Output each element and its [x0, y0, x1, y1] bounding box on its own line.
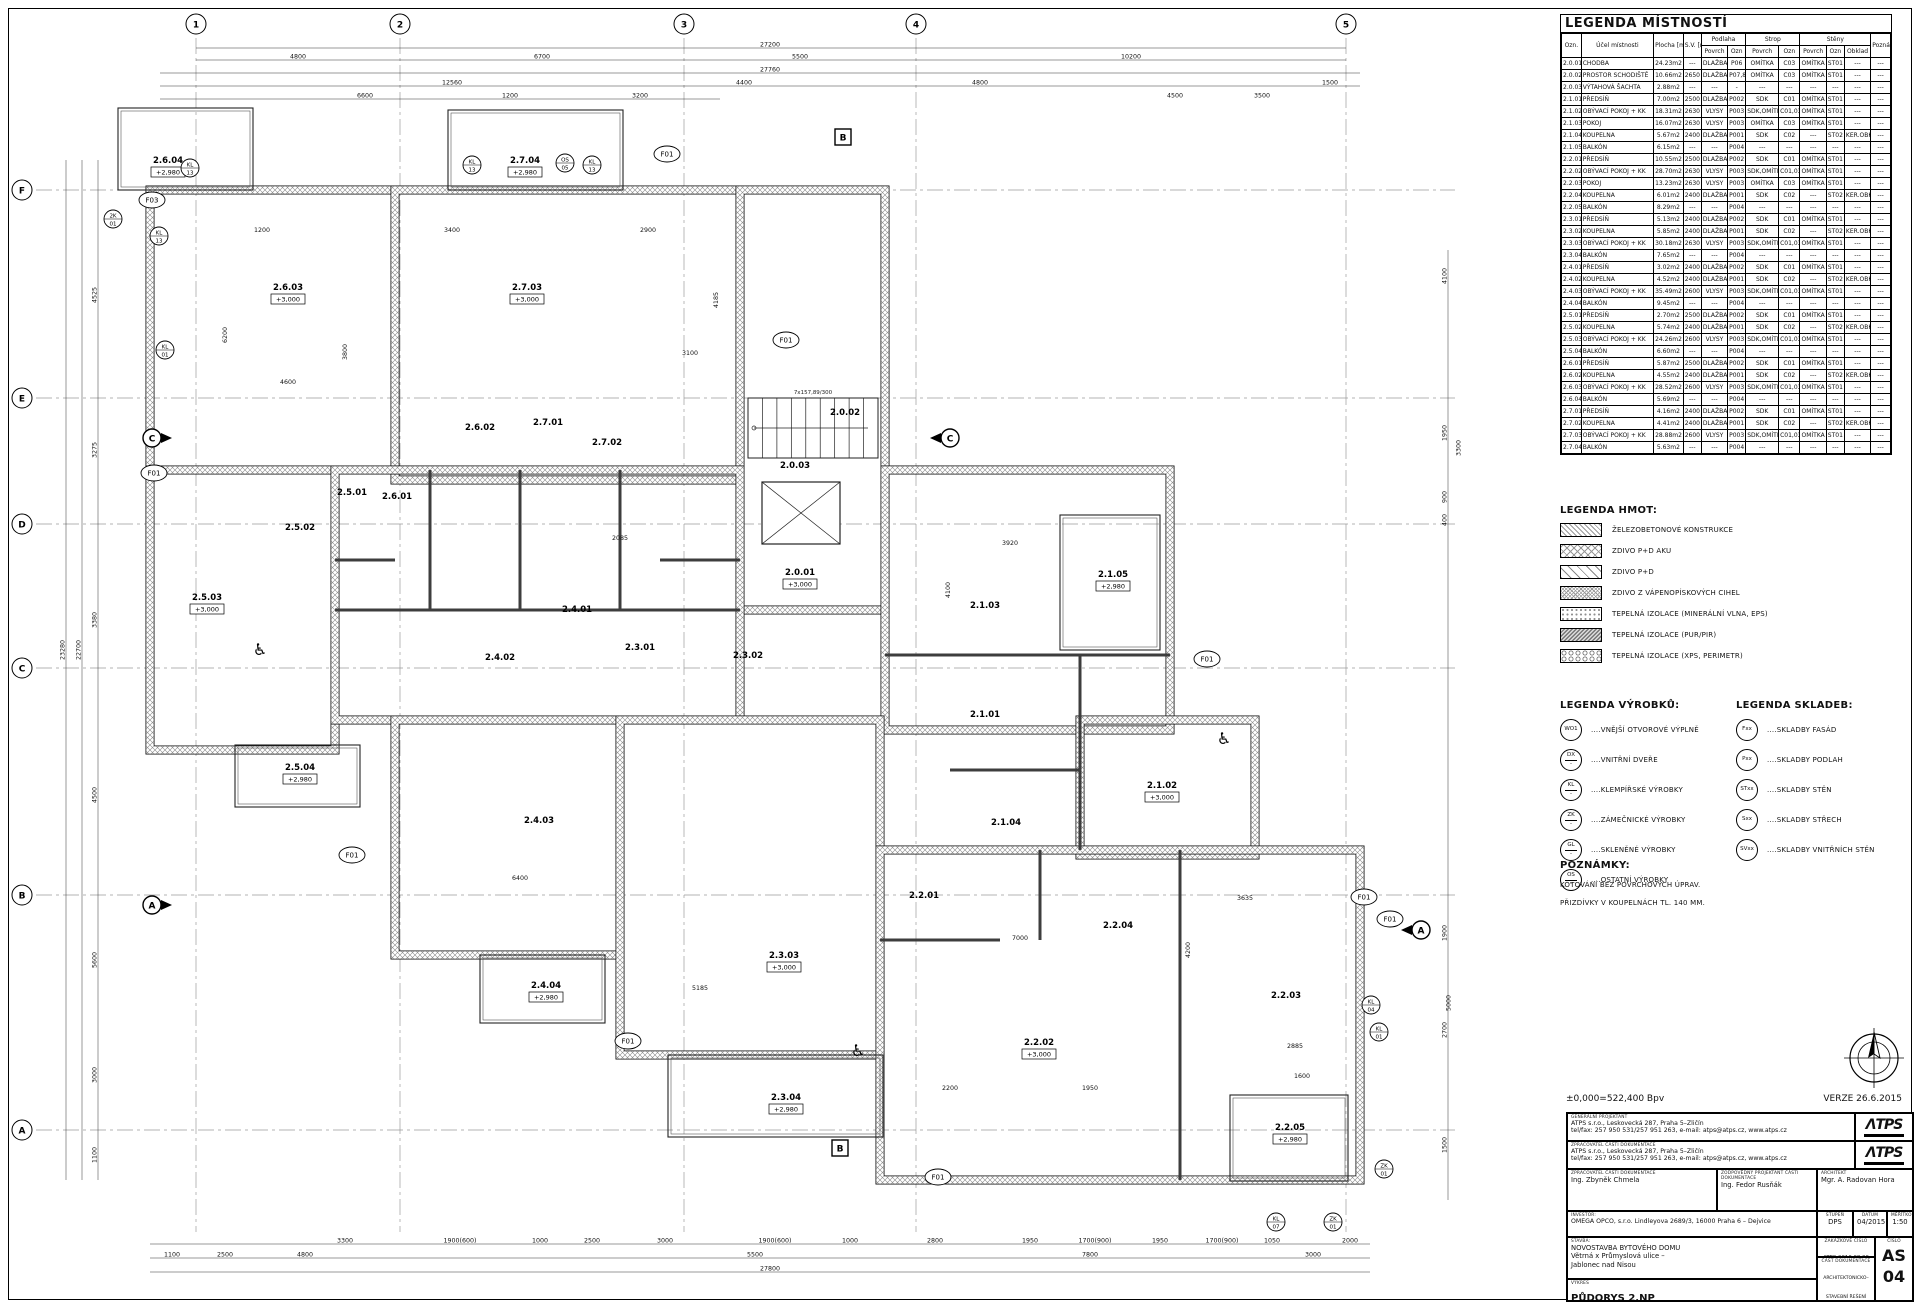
- table-row: 2.4.03OBÝVACÍ POKOJ + KK35.49m22600VLYSY…: [1562, 286, 1891, 298]
- table-cell: ST01: [1826, 430, 1844, 442]
- grid-bubble-label: B: [19, 892, 26, 902]
- table-cell: 24.26m2: [1654, 334, 1684, 346]
- table-cell: ---: [1826, 82, 1844, 94]
- dim-label: 2500: [584, 1238, 600, 1245]
- product-marker-number: 13: [156, 239, 163, 245]
- table-cell: ---: [1871, 430, 1891, 442]
- table-cell: 2600: [1683, 334, 1701, 346]
- table-cell: KOUPELNA: [1581, 370, 1653, 382]
- dim-label: 4500: [92, 787, 99, 803]
- column-header: Podlaha: [1701, 34, 1745, 46]
- room-label: 2.1.01: [970, 710, 1000, 720]
- table-cell: ---: [1844, 298, 1870, 310]
- table-cell: ST02: [1826, 274, 1844, 286]
- table-cell: 5.63m2: [1654, 442, 1684, 454]
- table-cell: KER.OBKL.: [1844, 274, 1870, 286]
- table-cell: ---: [1779, 250, 1800, 262]
- product-marker-number: 13: [187, 171, 194, 177]
- table-cell: 2.5.04: [1562, 346, 1582, 358]
- table-cell: ---: [1746, 298, 1779, 310]
- legend-item: WO1....VNĚJŠÍ OTVOROVÉ VÝPLNĚ: [1560, 719, 1730, 741]
- room-label: 2.7.02: [592, 438, 622, 448]
- table-cell: 16.07m2: [1654, 118, 1684, 130]
- table-cell: 4.55m2: [1654, 370, 1684, 382]
- table-cell: 2.2.05: [1562, 202, 1582, 214]
- table-cell: KOUPELNA: [1581, 190, 1653, 202]
- table-cell: ---: [1683, 250, 1701, 262]
- table-cell: VLYSY: [1701, 334, 1727, 346]
- table-cell: VLYSY: [1701, 382, 1727, 394]
- table-cell: OMÍTKA: [1800, 334, 1826, 346]
- table-cell: P06: [1728, 58, 1746, 70]
- table-cell: ---: [1871, 154, 1891, 166]
- table-cell: ---: [1871, 274, 1891, 286]
- table-cell: P003: [1728, 286, 1746, 298]
- dim-label: 900: [1442, 491, 1449, 503]
- architect-cell: ARCHITEKT Mgr. A. Radovan Hora: [1817, 1169, 1913, 1211]
- table-row: 2.7.01PŘEDSÍŇ4.16m22400DLAŽBAP002SDKC01O…: [1562, 406, 1891, 418]
- column-header: Ozn: [1779, 46, 1800, 58]
- table-cell: 6.60m2: [1654, 346, 1684, 358]
- table-cell: VLYSY: [1701, 430, 1727, 442]
- table-cell: 24.23m2: [1654, 58, 1684, 70]
- drawing-name-value: PŮDORYS 2.NP: [1571, 1293, 1655, 1301]
- table-cell: ---: [1871, 166, 1891, 178]
- table-cell: ST02: [1826, 130, 1844, 142]
- room-label: 2.1.03: [970, 601, 1000, 611]
- table-cell: ---: [1844, 166, 1870, 178]
- table-row: 2.3.02KOUPELNA5.85m22400DLAŽBAP001SDKC02…: [1562, 226, 1891, 238]
- table-cell: PŘEDSÍŇ: [1581, 262, 1653, 274]
- elevation-label: +3,000: [772, 964, 796, 972]
- table-cell: VLYSY: [1701, 106, 1727, 118]
- table-cell: ---: [1871, 226, 1891, 238]
- dim-label: 2200: [942, 1085, 958, 1092]
- dim-label: 1000: [532, 1238, 548, 1245]
- table-cell: SDK,OMÍTKA: [1746, 286, 1779, 298]
- table-row: 2.6.04BALKÓN5.69m2------P004------------…: [1562, 394, 1891, 406]
- wall-block: [885, 470, 1170, 730]
- table-cell: OMÍTKA: [1800, 238, 1826, 250]
- table-cell: ---: [1844, 286, 1870, 298]
- room-label: 2.3.04: [771, 1093, 801, 1103]
- grid-bubble-label: F: [19, 187, 25, 197]
- table-cell: ---: [1701, 298, 1727, 310]
- elevation-label: +3,000: [195, 606, 219, 614]
- table-cell: SDK: [1746, 418, 1779, 430]
- table-cell: OMÍTKA: [1746, 178, 1779, 190]
- legend-label: ....SKLADBY PODLAH: [1767, 756, 1843, 764]
- table-cell: ---: [1871, 130, 1891, 142]
- table-cell: 10.55m2: [1654, 154, 1684, 166]
- section-marker-arrow: [161, 433, 172, 443]
- table-cell: C02: [1779, 370, 1800, 382]
- table-cell: OMÍTKA: [1800, 178, 1826, 190]
- dim-label: 1900(600): [759, 1238, 792, 1245]
- table-cell: 2.5.03: [1562, 334, 1582, 346]
- table-cell: ST01: [1826, 406, 1844, 418]
- table-cell: P004: [1728, 250, 1746, 262]
- table-cell: ---: [1844, 154, 1870, 166]
- product-marker-code: KL: [187, 163, 195, 169]
- table-cell: 2.4.01: [1562, 262, 1582, 274]
- table-cell: ---: [1844, 310, 1870, 322]
- table-cell: VLYSY: [1701, 166, 1727, 178]
- dim-label: 10200: [1121, 54, 1141, 61]
- table-cell: DLAŽBA: [1701, 154, 1727, 166]
- table-cell: SDK: [1746, 154, 1779, 166]
- room-label: 2.2.04: [1103, 921, 1133, 931]
- table-cell: ---: [1701, 82, 1727, 94]
- table-cell: ---: [1746, 250, 1779, 262]
- legend-item: SVxx....SKLADBY VNITŘNÍCH STĚN: [1736, 839, 1906, 861]
- table-cell: ST02: [1826, 418, 1844, 430]
- table-cell: 28.88m2: [1654, 430, 1684, 442]
- grid-bubble-label: 1: [193, 21, 199, 31]
- table-cell: OMÍTKA: [1800, 430, 1826, 442]
- section-marker-label: C: [149, 435, 156, 445]
- table-cell: 2.2.01: [1562, 154, 1582, 166]
- room-label: 2.7.04: [510, 156, 540, 166]
- table-cell: 2.2.03: [1562, 178, 1582, 190]
- table-cell: 2.4.04: [1562, 298, 1582, 310]
- table-cell: -: [1728, 82, 1746, 94]
- table-cell: ---: [1779, 442, 1800, 454]
- legend-item: ZK-....ZÁMEČNICKÉ VÝROBKY: [1560, 809, 1730, 831]
- table-cell: DLAŽBA: [1701, 358, 1727, 370]
- table-cell: ---: [1844, 382, 1870, 394]
- dim-label: 3400: [444, 227, 460, 234]
- stage-cell: STUPEŇ DPS: [1817, 1211, 1853, 1237]
- table-cell: ST02: [1826, 322, 1844, 334]
- room-label: 2.6.01: [382, 492, 412, 502]
- table-cell: 2.6.03: [1562, 382, 1582, 394]
- table-cell: KER.OBKL.: [1844, 130, 1870, 142]
- column-header: S.V. [mm]: [1683, 34, 1701, 58]
- table-cell: 2.88m2: [1654, 82, 1684, 94]
- table-cell: KOUPELNA: [1581, 418, 1653, 430]
- table-cell: ---: [1800, 190, 1826, 202]
- room-label: 2.2.02: [1024, 1038, 1054, 1048]
- dim-label: 1950: [1152, 1238, 1168, 1245]
- room-label: 2.7.03: [512, 283, 542, 293]
- table-row: 2.1.02OBÝVACÍ POKOJ + KK18.31m22630VLYSY…: [1562, 106, 1891, 118]
- wheelchair-icon: ♿: [851, 1041, 865, 1060]
- room-label: 2.6.02: [465, 423, 495, 433]
- product-marker-number: 05: [562, 166, 569, 172]
- room-label: 2.7.01: [533, 418, 563, 428]
- date-value: 04/2015: [1857, 1218, 1883, 1226]
- dim-label: 23280: [60, 640, 67, 660]
- room-label: 2.2.01: [909, 891, 939, 901]
- table-cell: ---: [1844, 58, 1870, 70]
- table-cell: ---: [1871, 442, 1891, 454]
- material-legend-item: TEPELNÁ IZOLACE (PUR/PIR): [1560, 628, 1890, 642]
- table-cell: ---: [1826, 298, 1844, 310]
- table-cell: P003: [1728, 118, 1746, 130]
- dim-label: 7000: [1012, 935, 1028, 942]
- table-cell: ---: [1844, 82, 1870, 94]
- table-cell: C01,03: [1779, 238, 1800, 250]
- dim-label: 5500: [747, 1252, 763, 1259]
- dim-label: 2000: [1342, 1238, 1358, 1245]
- elevation-label: +2,980: [774, 1106, 798, 1114]
- dim-label: 2900: [640, 227, 656, 234]
- table-cell: 2.2.04: [1562, 190, 1582, 202]
- table-cell: ---: [1779, 346, 1800, 358]
- table-cell: 2400: [1683, 190, 1701, 202]
- legend-item: Fxx....SKLADBY FASÁD: [1736, 719, 1906, 741]
- notes-title: POZNÁMKY:: [1560, 860, 1900, 871]
- table-cell: 2.7.04: [1562, 442, 1582, 454]
- elevation-label: +3,000: [1150, 794, 1174, 802]
- product-marker-number: 01: [1376, 1035, 1383, 1041]
- table-cell: ---: [1844, 358, 1870, 370]
- product-marker-number: 01: [162, 353, 169, 359]
- table-cell: P003: [1728, 178, 1746, 190]
- room-label: 2.4.03: [524, 816, 554, 826]
- table-row: 2.0.02PROSTOR SCHODIŠTĚ10.66m22650DLAŽBA…: [1562, 70, 1891, 82]
- table-cell: ---: [1746, 202, 1779, 214]
- room-legend-title: LEGENDA MÍSTNOSTÍ: [1561, 15, 1891, 33]
- table-cell: BALKÓN: [1581, 298, 1653, 310]
- column-header: Strop: [1746, 34, 1800, 46]
- responsible-designer-name: Ing. Fedor Rusňák: [1721, 1181, 1813, 1189]
- table-cell: P003: [1728, 106, 1746, 118]
- table-row: 2.3.04BALKÓN7.65m2------P004------------…: [1562, 250, 1891, 262]
- table-cell: ST01: [1826, 118, 1844, 130]
- author-cell: ZPRACOVATEL ČÁSTI DOKUMENTACE Ing. Zbyně…: [1567, 1169, 1717, 1211]
- table-cell: C01,03: [1779, 286, 1800, 298]
- balcony-outline: [118, 108, 253, 190]
- legend-label: ....KLEMPÍŘSKÉ VÝROBKY: [1591, 786, 1683, 794]
- section-square-label: B: [840, 134, 847, 144]
- table-cell: DLAŽBA: [1701, 130, 1727, 142]
- grid-bubble-label: E: [19, 395, 25, 405]
- table-cell: SDK: [1746, 406, 1779, 418]
- symbol-circle-icon: Sxx: [1736, 809, 1758, 831]
- dim-label: 3275: [92, 442, 99, 458]
- table-cell: ---: [1871, 382, 1891, 394]
- table-cell: ---: [1746, 394, 1779, 406]
- dim-label: 1950: [1082, 1085, 1098, 1092]
- product-marker-number: 04: [1368, 1008, 1375, 1014]
- legend-item: Pxx....SKLADBY PODLAH: [1736, 749, 1906, 771]
- elevation-label: +3,000: [515, 296, 539, 304]
- table-cell: ---: [1746, 346, 1779, 358]
- room-label: 2.6.04: [153, 156, 183, 166]
- table-cell: ---: [1800, 394, 1826, 406]
- dim-label: 2500: [217, 1252, 233, 1259]
- table-cell: 2.1.05: [1562, 142, 1582, 154]
- table-cell: 6.01m2: [1654, 190, 1684, 202]
- table-cell: 2600: [1683, 286, 1701, 298]
- table-cell: 7.00m2: [1654, 94, 1684, 106]
- dim-label: 6200: [222, 327, 229, 343]
- table-cell: 28.70m2: [1654, 166, 1684, 178]
- table-cell: P002: [1728, 262, 1746, 274]
- section-marker-arrow: [161, 900, 172, 910]
- table-row: 2.1.03POKOJ16.07m22630VLYSYP003OMÍTKAC03…: [1562, 118, 1891, 130]
- table-cell: P002: [1728, 154, 1746, 166]
- table-cell: C03: [1779, 70, 1800, 82]
- table-cell: DLAŽBA: [1701, 214, 1727, 226]
- material-legend: LEGENDA HMOT: ŽELEZOBETONOVÉ KONSTRUKCEZ…: [1560, 505, 1890, 663]
- table-cell: C01: [1779, 262, 1800, 274]
- dim-label: 3100: [682, 350, 698, 357]
- responsible-designer-cell: ZODPOVĚDNÝ PROJEKTANT ČÁSTI DOKUMENTACE …: [1717, 1169, 1817, 1211]
- elevation-label: +2,980: [156, 169, 180, 177]
- table-cell: VLYSY: [1701, 178, 1727, 190]
- table-row: 2.0.03VÝTAHOVÁ ŠACHTA2.88m2-------------…: [1562, 82, 1891, 94]
- table-cell: KER.OBKL.: [1844, 370, 1870, 382]
- table-cell: VÝTAHOVÁ ŠACHTA: [1581, 82, 1653, 94]
- table-cell: ST01: [1826, 166, 1844, 178]
- table-cell: PROSTOR SCHODIŠTĚ: [1581, 70, 1653, 82]
- table-cell: 9.45m2: [1654, 298, 1684, 310]
- hatch-swatch-icon: [1560, 628, 1602, 642]
- dim-label: 3000: [1305, 1252, 1321, 1259]
- table-cell: ---: [1683, 442, 1701, 454]
- table-cell: PŘEDSÍŇ: [1581, 214, 1653, 226]
- dim-label: 4200: [1185, 942, 1192, 958]
- table-cell: OBÝVACÍ POKOJ + KK: [1581, 106, 1653, 118]
- table-cell: P004: [1728, 442, 1746, 454]
- hatch-swatch-icon: [1560, 607, 1602, 621]
- material-legend-label: TEPELNÁ IZOLACE (XPS, PERIMETR): [1612, 652, 1743, 660]
- note-line: PŘIZDÍVKY V KOUPELNÁCH TL. 140 MM.: [1560, 899, 1900, 907]
- wheelchair-icon: ♿: [1217, 729, 1231, 748]
- symbol-circle-icon: KL-: [1560, 779, 1582, 801]
- table-row: 2.2.01PŘEDSÍŇ10.55m22500DLAŽBAP002SDKC01…: [1562, 154, 1891, 166]
- symbol-circle-icon: SVxx: [1736, 839, 1758, 861]
- table-cell: P003: [1728, 430, 1746, 442]
- table-cell: SDK: [1746, 226, 1779, 238]
- dim-label: 27200: [760, 42, 780, 49]
- table-cell: C02: [1779, 130, 1800, 142]
- table-cell: ---: [1683, 82, 1701, 94]
- table-row: 2.3.01PŘEDSÍŇ5.13m22400DLAŽBAP002SDKC01O…: [1562, 214, 1891, 226]
- elevation-label: +2,980: [1278, 1136, 1302, 1144]
- legend-item: DX-....VNITŘNÍ DVEŘE: [1560, 749, 1730, 771]
- table-cell: 2.6.04: [1562, 394, 1582, 406]
- table-cell: ---: [1871, 58, 1891, 70]
- table-cell: C01: [1779, 94, 1800, 106]
- dim-label: 12560: [442, 80, 462, 87]
- table-cell: ---: [1871, 250, 1891, 262]
- table-cell: CHODBA: [1581, 58, 1653, 70]
- title-block: GENERÁLNÍ PROJEKTANT ATPS s.r.o., Leskov…: [1566, 1112, 1914, 1302]
- dim-label: 4800: [972, 80, 988, 87]
- symbol-circle-icon: ZK-: [1560, 809, 1582, 831]
- column-header: Ozn.: [1562, 34, 1582, 58]
- table-cell: 6.15m2: [1654, 142, 1684, 154]
- table-cell: C03: [1779, 58, 1800, 70]
- table-cell: P003: [1728, 382, 1746, 394]
- table-cell: ---: [1683, 142, 1701, 154]
- table-cell: 2630: [1683, 106, 1701, 118]
- wall-block: [620, 720, 880, 1055]
- table-cell: ---: [1871, 178, 1891, 190]
- table-cell: SDK,OMÍTKA: [1746, 166, 1779, 178]
- date-cell: DATUM 04/2015: [1853, 1211, 1887, 1237]
- table-cell: ---: [1746, 82, 1779, 94]
- room-label: 2.5.01: [337, 488, 367, 498]
- table-cell: 2400: [1683, 130, 1701, 142]
- table-cell: 2.6.02: [1562, 370, 1582, 382]
- dim-label: 4800: [297, 1252, 313, 1259]
- table-cell: ---: [1701, 250, 1727, 262]
- table-row: 2.4.02KOUPELNA4.52m22400DLAŽBAP001SDKC02…: [1562, 274, 1891, 286]
- table-cell: P001: [1728, 322, 1746, 334]
- table-cell: ---: [1844, 238, 1870, 250]
- room-label: 2.6.03: [273, 283, 303, 293]
- table-cell: 5.74m2: [1654, 322, 1684, 334]
- table-cell: 5.87m2: [1654, 358, 1684, 370]
- table-cell: ---: [1871, 70, 1891, 82]
- dim-label: 1200: [502, 93, 518, 100]
- hatch-swatch-icon: [1560, 649, 1602, 663]
- table-cell: OBÝVACÍ POKOJ + KK: [1581, 238, 1653, 250]
- room-label: 2.5.03: [192, 593, 222, 603]
- hatch-swatch-icon: [1560, 544, 1602, 558]
- compositions-legend: LEGENDA SKLADEB: Fxx....SKLADBY FASÁDPxx…: [1736, 700, 1906, 861]
- table-cell: P004: [1728, 142, 1746, 154]
- dim-label: 4400: [736, 80, 752, 87]
- room-label: 2.0.01: [785, 568, 815, 578]
- wall-block: [150, 470, 335, 750]
- table-cell: ---: [1800, 82, 1826, 94]
- wall-block-hatch: [395, 720, 620, 955]
- table-cell: 5.67m2: [1654, 130, 1684, 142]
- table-cell: 2400: [1683, 226, 1701, 238]
- table-row: 2.1.01PŘEDSÍŇ7.00m22500DLAŽBAP002SDKC01O…: [1562, 94, 1891, 106]
- table-cell: P002: [1728, 94, 1746, 106]
- table-cell: OBÝVACÍ POKOJ + KK: [1581, 334, 1653, 346]
- table-cell: OMÍTKA: [1800, 262, 1826, 274]
- column-header: Stěny: [1800, 34, 1871, 46]
- table-cell: C01,03: [1779, 106, 1800, 118]
- table-cell: POKOJ: [1581, 178, 1653, 190]
- table-cell: ---: [1844, 394, 1870, 406]
- elevation-label: +3,000: [1027, 1051, 1051, 1059]
- column-header: Ozn: [1826, 46, 1844, 58]
- table-cell: ST01: [1826, 106, 1844, 118]
- author-name: Ing. Zbyněk Chmela: [1571, 1176, 1713, 1184]
- table-cell: 2400: [1683, 262, 1701, 274]
- table-row: 2.1.05BALKÓN6.15m2------P004------------…: [1562, 142, 1891, 154]
- north-arrow-icon: [1842, 1026, 1906, 1090]
- table-row: 2.2.02OBÝVACÍ POKOJ + KK28.70m22630VLYSY…: [1562, 166, 1891, 178]
- table-cell: ---: [1871, 334, 1891, 346]
- table-cell: PŘEDSÍŇ: [1581, 154, 1653, 166]
- table-cell: 2630: [1683, 178, 1701, 190]
- table-cell: ---: [1844, 118, 1870, 130]
- reference-marker-label: F01: [346, 852, 359, 860]
- table-cell: 2.0.03: [1562, 82, 1582, 94]
- table-cell: SDK,OMÍTKA: [1746, 238, 1779, 250]
- table-cell: ---: [1779, 394, 1800, 406]
- table-cell: ST01: [1826, 94, 1844, 106]
- table-cell: C02: [1779, 226, 1800, 238]
- legend-label: ....VNĚJŠÍ OTVOROVÉ VÝPLNĚ: [1591, 726, 1699, 734]
- table-cell: ---: [1826, 202, 1844, 214]
- general-designer-line2: tel/fax: 257 950 531/257 951 263, e-mail…: [1571, 1127, 1851, 1134]
- table-cell: OMÍTKA: [1800, 118, 1826, 130]
- dim-label: 3000: [92, 1067, 99, 1083]
- table-cell: ---: [1871, 118, 1891, 130]
- table-cell: 18.31m2: [1654, 106, 1684, 118]
